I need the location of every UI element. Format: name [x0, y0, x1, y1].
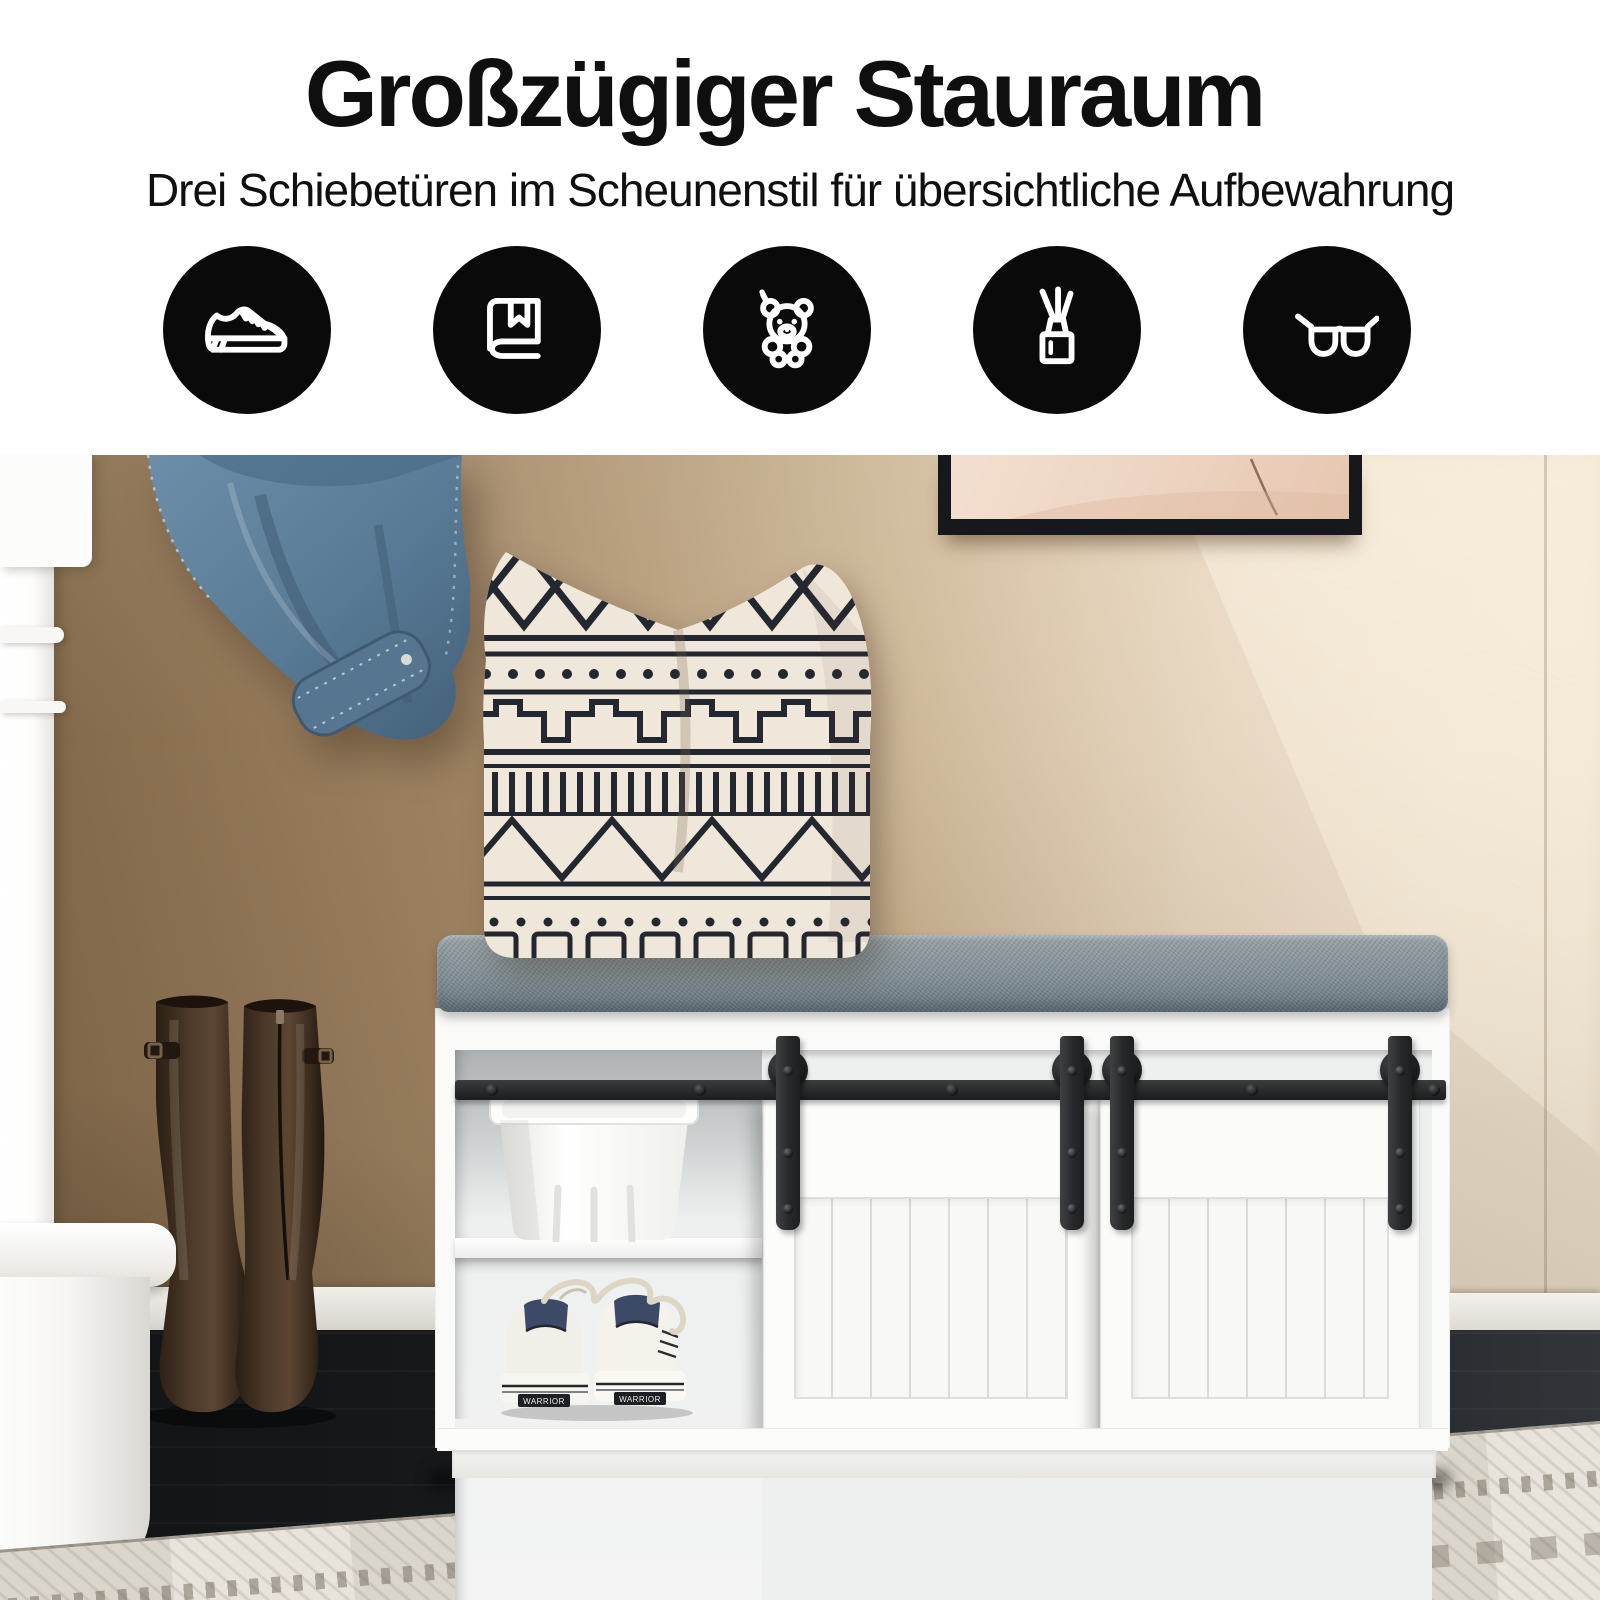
frame-artwork: [951, 455, 1349, 519]
rail-bolt: [946, 1084, 958, 1096]
sliding-barn-door-left: [763, 1096, 1099, 1432]
rail-bolt: [694, 1084, 706, 1096]
teddy-bear-icon: [703, 246, 871, 414]
page-title: Großzügiger Stauraum: [0, 42, 1584, 145]
hallway-photo: WARRIOR WARRIOR: [0, 455, 1600, 1600]
door-panel: [1131, 1197, 1389, 1399]
sneakers: WARRIOR WARRIOR: [494, 1275, 700, 1421]
rail-bolt: [486, 1084, 498, 1096]
bench-bottom-board: [437, 1428, 1448, 1451]
header: Großzügiger Stauraum Drei Schiebetüren i…: [0, 0, 1600, 455]
tribal-pillow: [472, 542, 880, 968]
sneaker-icon: [163, 246, 331, 414]
svg-text:WARRIOR: WARRIOR: [619, 1395, 661, 1404]
glasses-icon: [1243, 246, 1411, 414]
stair-ledge: [0, 627, 64, 643]
storage-bin: [488, 1092, 700, 1242]
shelf-shadow: [455, 1258, 762, 1274]
door-hanger-strap: [1110, 1036, 1134, 1230]
picture-frame: [938, 455, 1362, 535]
door-panel: [794, 1197, 1068, 1399]
feature-icons-row: [163, 246, 1411, 414]
door-hanger-strap: [776, 1036, 800, 1230]
sliding-barn-door-right: [1100, 1096, 1420, 1432]
book-icon: [433, 246, 601, 414]
stair-ledge: [0, 701, 66, 713]
product-infographic: Großzügiger Stauraum Drei Schiebetüren i…: [0, 0, 1600, 1600]
stair-newel: [0, 455, 92, 567]
rail-bolt: [1428, 1084, 1440, 1096]
svg-text:WARRIOR: WARRIOR: [523, 1397, 565, 1406]
bench-plinth: [452, 1450, 1436, 1478]
leather-boots: [140, 980, 340, 1430]
door-hanger-strap: [1388, 1036, 1412, 1230]
reed-diffuser-icon: [973, 246, 1141, 414]
stair-banister: [0, 455, 54, 1255]
door-hanger-strap: [1060, 1036, 1084, 1230]
page-subtitle: Drei Schiebetüren im Scheunenstil für üb…: [0, 163, 1600, 217]
denim-jacket: [140, 455, 470, 760]
stool-base: [0, 1277, 150, 1582]
rail-bolt: [1246, 1084, 1258, 1096]
